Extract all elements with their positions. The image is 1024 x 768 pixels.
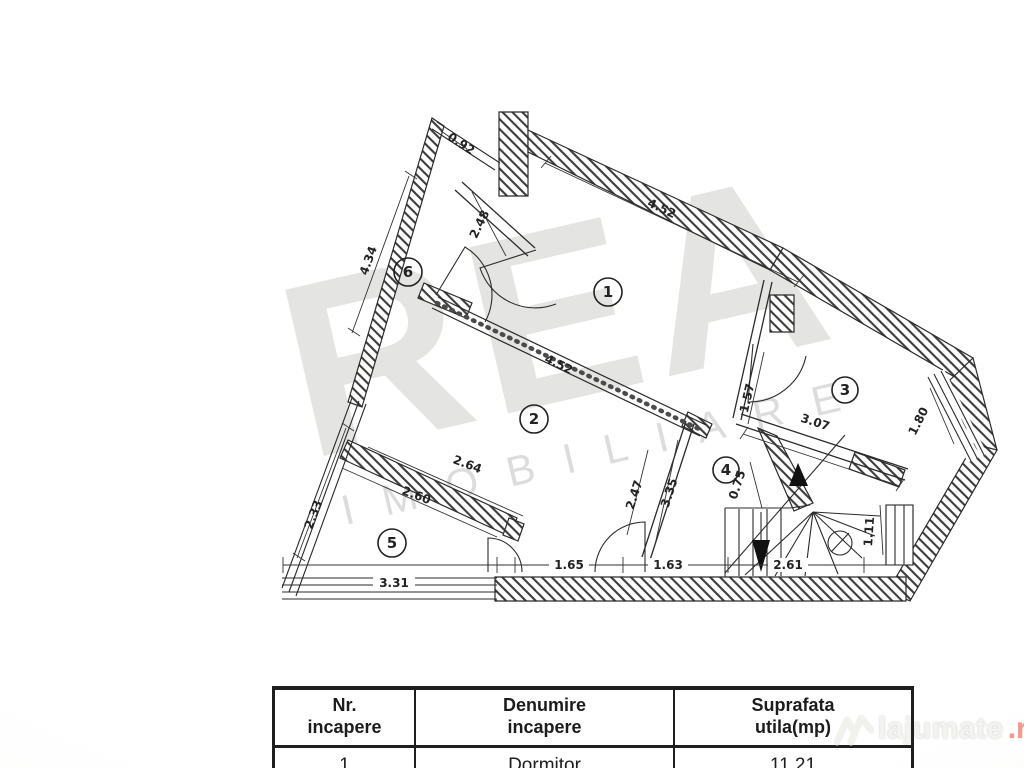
dim-1-11: 1.11 — [861, 516, 877, 547]
wall-jog-stub — [770, 295, 794, 332]
room-5-label: 5 — [378, 529, 406, 557]
areas-table-header: Nr. incapere Denumire incapere Suprafata… — [275, 690, 911, 748]
areas-table: Nr. incapere Denumire incapere Suprafata… — [272, 686, 914, 768]
dim-1-65: 1.65 — [554, 558, 584, 572]
dim-3-31: 3.31 — [379, 576, 409, 590]
wall-top-room3 — [770, 248, 973, 380]
svg-text:6: 6 — [403, 263, 413, 281]
wall-bottom — [495, 577, 906, 601]
door-room4-exit — [595, 522, 645, 572]
row-denumire: Dormitor — [414, 748, 673, 768]
header-suprafata-utila: Suprafata utila(mp) — [673, 690, 911, 745]
row-nr: 1 — [275, 748, 414, 768]
dim-2-61: 2.61 — [773, 558, 803, 572]
floor-plan: 0.92 2.48 4.34 4.52 4.52 1.57 3.07 1.80 … — [0, 0, 1024, 768]
dim-2-48: 2.48 — [467, 208, 493, 241]
svg-text:4: 4 — [721, 461, 731, 479]
dim-1-63: 1.63 — [653, 558, 683, 572]
dim-4-34: 4.34 — [357, 244, 380, 277]
dimension-lines — [283, 131, 954, 573]
door-rooms-6-1 — [480, 250, 556, 308]
header-denumire-incapere: Denumire incapere — [414, 690, 673, 745]
room-3-label: 3 — [832, 377, 858, 403]
dim-2-47: 2.47 — [623, 479, 645, 511]
row-suprafata: 11.21 — [673, 748, 911, 768]
stair-turn-symbol-line — [831, 533, 849, 552]
wall-room3-bottom-stub — [849, 452, 905, 487]
dim-3-35: 3.35 — [658, 477, 680, 509]
window-stair-right — [886, 505, 913, 565]
svg-text:3: 3 — [840, 381, 850, 399]
room-2-label: 2 — [520, 405, 548, 433]
wall-room5-partition — [340, 440, 517, 536]
svg-text:5: 5 — [387, 534, 397, 552]
dim-3-07: 3.07 — [799, 411, 831, 433]
dim-1-80: 1.80 — [905, 405, 931, 438]
table-row: 1 Dormitor 11.21 — [275, 748, 911, 768]
dim-0-92: 0.92 — [445, 130, 477, 158]
svg-text:2: 2 — [529, 410, 539, 428]
window-left-wall — [282, 398, 366, 596]
dim-4-52-mid: 4.52 — [542, 352, 575, 378]
partitions — [455, 182, 908, 560]
room-1-label: 1 — [594, 278, 622, 306]
scanned-floorplan-page: REA IMOBILIARE — [0, 0, 1024, 768]
svg-text:1: 1 — [603, 283, 613, 301]
door-room5-exit — [488, 538, 522, 572]
wall-top-block — [499, 112, 528, 196]
dim-2-64: 2.64 — [451, 452, 484, 476]
header-nr-incapere: Nr. incapere — [275, 690, 414, 745]
